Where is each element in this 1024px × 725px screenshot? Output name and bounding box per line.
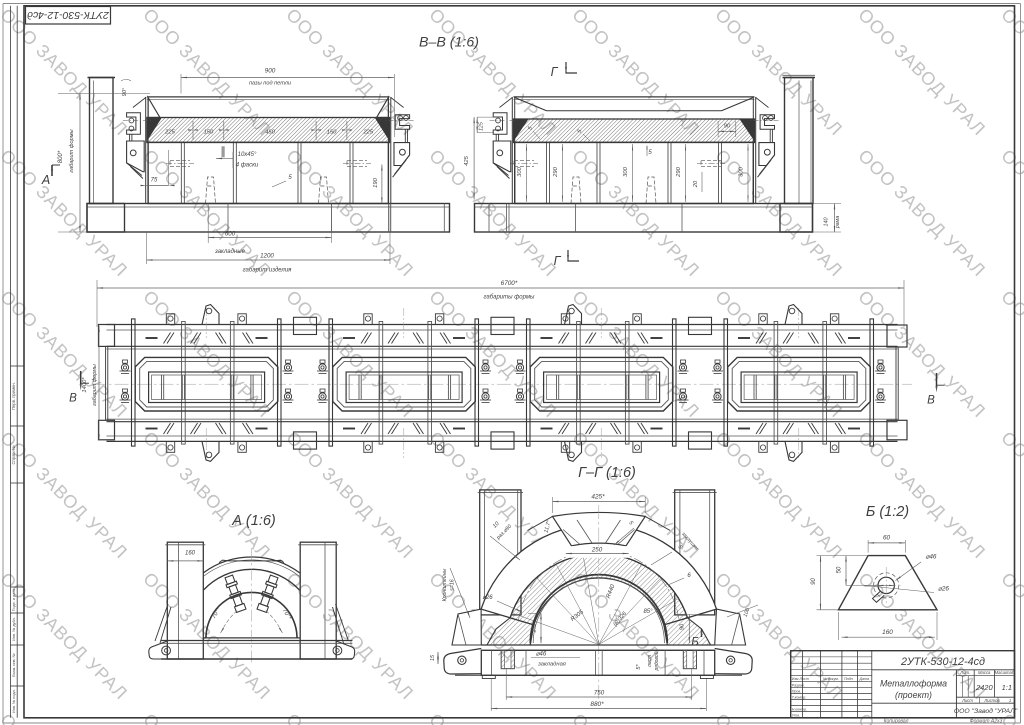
- svg-text:Изм Лист: Изм Лист: [792, 677, 809, 681]
- svg-text:(проект): (проект): [895, 690, 932, 700]
- svg-text:А: А: [41, 173, 50, 187]
- svg-text:225: 225: [362, 130, 373, 136]
- svg-text:425: 425: [464, 155, 470, 165]
- svg-text:габарит формы: габарит формы: [92, 364, 98, 406]
- svg-text:90: 90: [680, 623, 686, 630]
- svg-text:Б: Б: [691, 637, 699, 649]
- svg-text:Металлоформа: Металлоформа: [880, 679, 947, 689]
- svg-text:габарит формы: габарит формы: [69, 129, 75, 172]
- svg-text:90: 90: [811, 578, 817, 585]
- svg-text:Копировал: Копировал: [884, 718, 909, 724]
- svg-text:20: 20: [693, 180, 699, 188]
- svg-text:Лист: Лист: [961, 698, 973, 703]
- svg-text:Н.контр.: Н.контр.: [792, 708, 807, 712]
- svg-text:800*: 800*: [58, 150, 64, 163]
- svg-text:s=16: s=16: [450, 579, 456, 591]
- svg-text:2УТК-530-12-4сд: 2УТК-530-12-4сд: [900, 656, 985, 668]
- svg-text:90°: 90°: [122, 87, 128, 96]
- svg-text:Г: Г: [551, 65, 559, 79]
- svg-text:закладные: закладные: [214, 249, 246, 255]
- svg-text:закладная: закладная: [537, 662, 566, 668]
- svg-text:Масштаб: Масштаб: [995, 670, 1015, 675]
- svg-text:300: 300: [623, 166, 629, 176]
- svg-text:2УТК-530-12-4сд: 2УТК-530-12-4сд: [27, 9, 110, 21]
- svg-text:А (1:6): А (1:6): [231, 513, 276, 529]
- svg-text:габариты формы: габариты формы: [484, 295, 535, 301]
- svg-text:600: 600: [225, 231, 236, 238]
- svg-text:75: 75: [151, 178, 158, 184]
- svg-text:300: 300: [517, 166, 523, 176]
- svg-text:В: В: [69, 393, 77, 405]
- svg-text:рядовой: рядовой: [653, 651, 660, 671]
- svg-text:Листов: Листов: [983, 698, 1000, 703]
- svg-text:90: 90: [724, 124, 731, 130]
- svg-text:880*: 880*: [590, 701, 604, 708]
- svg-text:60: 60: [883, 535, 891, 542]
- svg-text:6700*: 6700*: [501, 280, 518, 287]
- svg-text:2420: 2420: [975, 683, 994, 692]
- svg-text:5*: 5*: [636, 664, 642, 670]
- svg-text:300: 300: [739, 166, 745, 176]
- svg-text:290: 290: [676, 166, 682, 177]
- svg-text:125: 125: [479, 122, 485, 131]
- svg-text:160: 160: [882, 629, 893, 636]
- svg-text:Утв.: Утв.: [792, 714, 800, 718]
- svg-text:900: 900: [265, 68, 276, 75]
- svg-text:425*: 425*: [591, 494, 605, 501]
- svg-text:150: 150: [204, 130, 214, 136]
- svg-text:450: 450: [265, 130, 275, 136]
- svg-text:Лит.: Лит.: [959, 670, 970, 675]
- svg-text:Г: Г: [554, 254, 562, 268]
- svg-text:15: 15: [430, 654, 436, 661]
- svg-text:225: 225: [164, 130, 175, 136]
- svg-text:пазы под петли: пазы под петли: [249, 81, 291, 87]
- svg-text:⌀26: ⌀26: [482, 595, 493, 601]
- svg-text:50: 50: [837, 566, 843, 573]
- svg-text:ООО "Завод "УРАЛ": ООО "Завод "УРАЛ": [954, 707, 1018, 715]
- svg-text:лист: лист: [647, 655, 653, 668]
- svg-text:⌀26: ⌀26: [938, 586, 949, 593]
- svg-text:Инв. № подл.: Инв. № подл.: [12, 689, 16, 713]
- svg-text:рама: рама: [835, 216, 841, 229]
- svg-text:⌀46: ⌀46: [926, 554, 937, 561]
- svg-text:Разраб.: Разраб.: [792, 684, 805, 688]
- svg-text:Кронштейны: Кронштейны: [441, 568, 448, 601]
- svg-text:4 фаски: 4 фаски: [236, 163, 259, 169]
- svg-text:Взам. инв. №: Взам. инв. №: [12, 653, 16, 677]
- svg-text:Г–Г (1:6): Г–Г (1:6): [578, 465, 636, 481]
- svg-text:10х45°: 10х45°: [238, 152, 257, 158]
- svg-text:1: 1: [1009, 698, 1011, 703]
- svg-text:Подп.: Подп.: [844, 677, 854, 681]
- svg-text:1400*: 1400*: [82, 377, 88, 393]
- svg-text:Пров.: Пров.: [792, 690, 801, 694]
- svg-text:750: 750: [594, 690, 605, 697]
- svg-text:1200: 1200: [260, 253, 274, 260]
- svg-text:190: 190: [373, 177, 379, 187]
- svg-text:Дата: Дата: [859, 677, 869, 681]
- svg-text:Т.контр.: Т.контр.: [792, 696, 807, 700]
- svg-text:Масса: Масса: [978, 670, 991, 675]
- svg-text:Инв. № дубл.: Инв. № дубл.: [12, 617, 16, 641]
- svg-text:150: 150: [327, 130, 337, 136]
- svg-text:Подп. и дата: Подп. и дата: [12, 588, 16, 611]
- svg-text:250: 250: [591, 547, 603, 554]
- svg-text:Перв. примен.: Перв. примен.: [11, 382, 16, 410]
- svg-text:В–В (1:6): В–В (1:6): [419, 35, 479, 51]
- svg-text:Справ. №: Справ. №: [11, 445, 16, 465]
- svg-text:габарит изделия: габарит изделия: [243, 268, 293, 274]
- svg-text:160: 160: [185, 551, 196, 557]
- svg-text:№ докум.: № докум.: [823, 677, 839, 681]
- svg-text:1:1: 1:1: [1002, 683, 1012, 692]
- svg-text:290: 290: [553, 166, 559, 177]
- svg-text:Б (1:2): Б (1:2): [866, 504, 909, 520]
- svg-text:Формат А2х3: Формат А2х3: [970, 718, 1003, 724]
- svg-text:140: 140: [824, 218, 830, 227]
- svg-text:130: 130: [532, 622, 538, 632]
- svg-text:В: В: [927, 395, 935, 407]
- svg-text:85°: 85°: [643, 609, 653, 615]
- svg-text:⌀46: ⌀46: [536, 651, 547, 658]
